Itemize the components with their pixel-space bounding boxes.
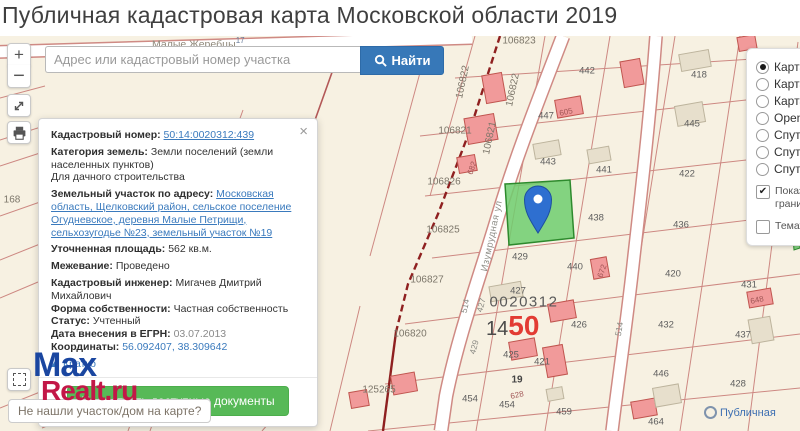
page-title: Публичная кадастровая карта Московской о… [0, 0, 800, 29]
cadastral-number-label: Кадастровый номер: [51, 129, 161, 141]
building-footprint [747, 288, 773, 308]
printer-icon [12, 126, 27, 140]
checkbox-checked-icon: ✔ [756, 185, 770, 199]
layer-option-4[interactable]: Спутни [756, 128, 800, 142]
site-logo[interactable]: Max Realt.ru [33, 352, 137, 403]
building-footprint [631, 398, 658, 419]
minus-icon: − [13, 65, 25, 88]
survey-label: Межевание: [51, 260, 113, 272]
land-purpose-value: Для дачного строительства [51, 171, 305, 184]
layer-option-3[interactable]: OpenSt [756, 111, 800, 125]
survey-value: Проведено [116, 260, 170, 272]
building-outline [674, 102, 705, 127]
building-footprint [548, 300, 577, 322]
radio-icon [756, 129, 769, 142]
egrn-date-value: 03.07.2013 [174, 328, 227, 340]
cadastral-quarter-number: 1450 [486, 310, 539, 342]
building-footprint [464, 114, 498, 145]
building-outline [546, 387, 564, 402]
layer-option-5[interactable]: Спутни [756, 145, 800, 159]
radio-icon [756, 112, 769, 125]
building-outline [748, 316, 774, 343]
globe-icon [704, 406, 717, 419]
status-value: Учтенный [93, 315, 141, 327]
area-value: 562 кв.м. [168, 243, 212, 255]
radio-icon [756, 95, 769, 108]
building-footprint [457, 155, 478, 174]
show-borders-checkbox[interactable]: ✔ Показать границы [756, 185, 800, 211]
building-footprint [555, 96, 584, 118]
thematic-checkbox[interactable]: Темати [756, 220, 800, 234]
building-footprint [349, 390, 370, 409]
building-outline [653, 384, 682, 407]
search-bar: Найти [45, 46, 444, 75]
coordinates-value: 56.092407, 38.309642 [122, 341, 227, 353]
building-footprint [391, 372, 418, 395]
expand-arrows-icon [12, 99, 26, 113]
status-label: Статус: [51, 315, 90, 327]
land-category-label: Категория земель: [51, 146, 148, 158]
zoom-out-button[interactable]: − [7, 65, 31, 88]
building-footprint [482, 72, 507, 103]
ownership-value: Частная собственность [174, 303, 289, 315]
radio-icon [756, 146, 769, 159]
page-header: Публичная кадастровая карта Московской о… [0, 0, 800, 36]
building-footprint [620, 58, 644, 87]
layers-panel: Карта Я Карта G Карта 2 OpenSt Спутни Сп… [746, 48, 800, 246]
app: { "header": { "title": "Публичная кадаст… [0, 0, 800, 431]
map-attribution-link[interactable]: Публичная [704, 406, 776, 419]
zoom-in-button[interactable]: + [7, 43, 31, 66]
search-input[interactable] [45, 46, 360, 73]
layer-option-6[interactable]: Спутни [756, 162, 800, 176]
layer-option-1[interactable]: Карта G [756, 77, 800, 91]
fullscreen-button[interactable] [7, 94, 31, 117]
address-label: Земельный участок по адресу: [51, 188, 213, 200]
layer-option-2[interactable]: Карта 2 [756, 94, 800, 108]
plus-icon: + [14, 45, 24, 65]
search-button[interactable]: Найти [360, 46, 444, 75]
house-number-label: 17 [236, 36, 245, 45]
radio-selected-icon [756, 61, 769, 74]
close-icon[interactable]: × [299, 124, 308, 139]
area-label: Уточненная площадь: [51, 243, 165, 255]
print-button[interactable] [7, 121, 31, 144]
cadastral-number-link[interactable]: 50:14:0020312:439 [164, 129, 255, 141]
ownership-label: Форма собственности: [51, 303, 171, 315]
engineer-label: Кадастровый инженер: [51, 277, 173, 289]
checkbox-icon [756, 220, 770, 234]
measure-area-icon [13, 373, 26, 386]
layer-option-0[interactable]: Карта Я [756, 60, 800, 74]
building-footprint [590, 257, 609, 279]
egrn-date-label: Дата внесения в ЕГРН: [51, 328, 171, 340]
measure-area-button[interactable] [7, 368, 31, 391]
radio-icon [756, 163, 769, 176]
search-icon [374, 54, 387, 67]
radio-icon [756, 78, 769, 91]
